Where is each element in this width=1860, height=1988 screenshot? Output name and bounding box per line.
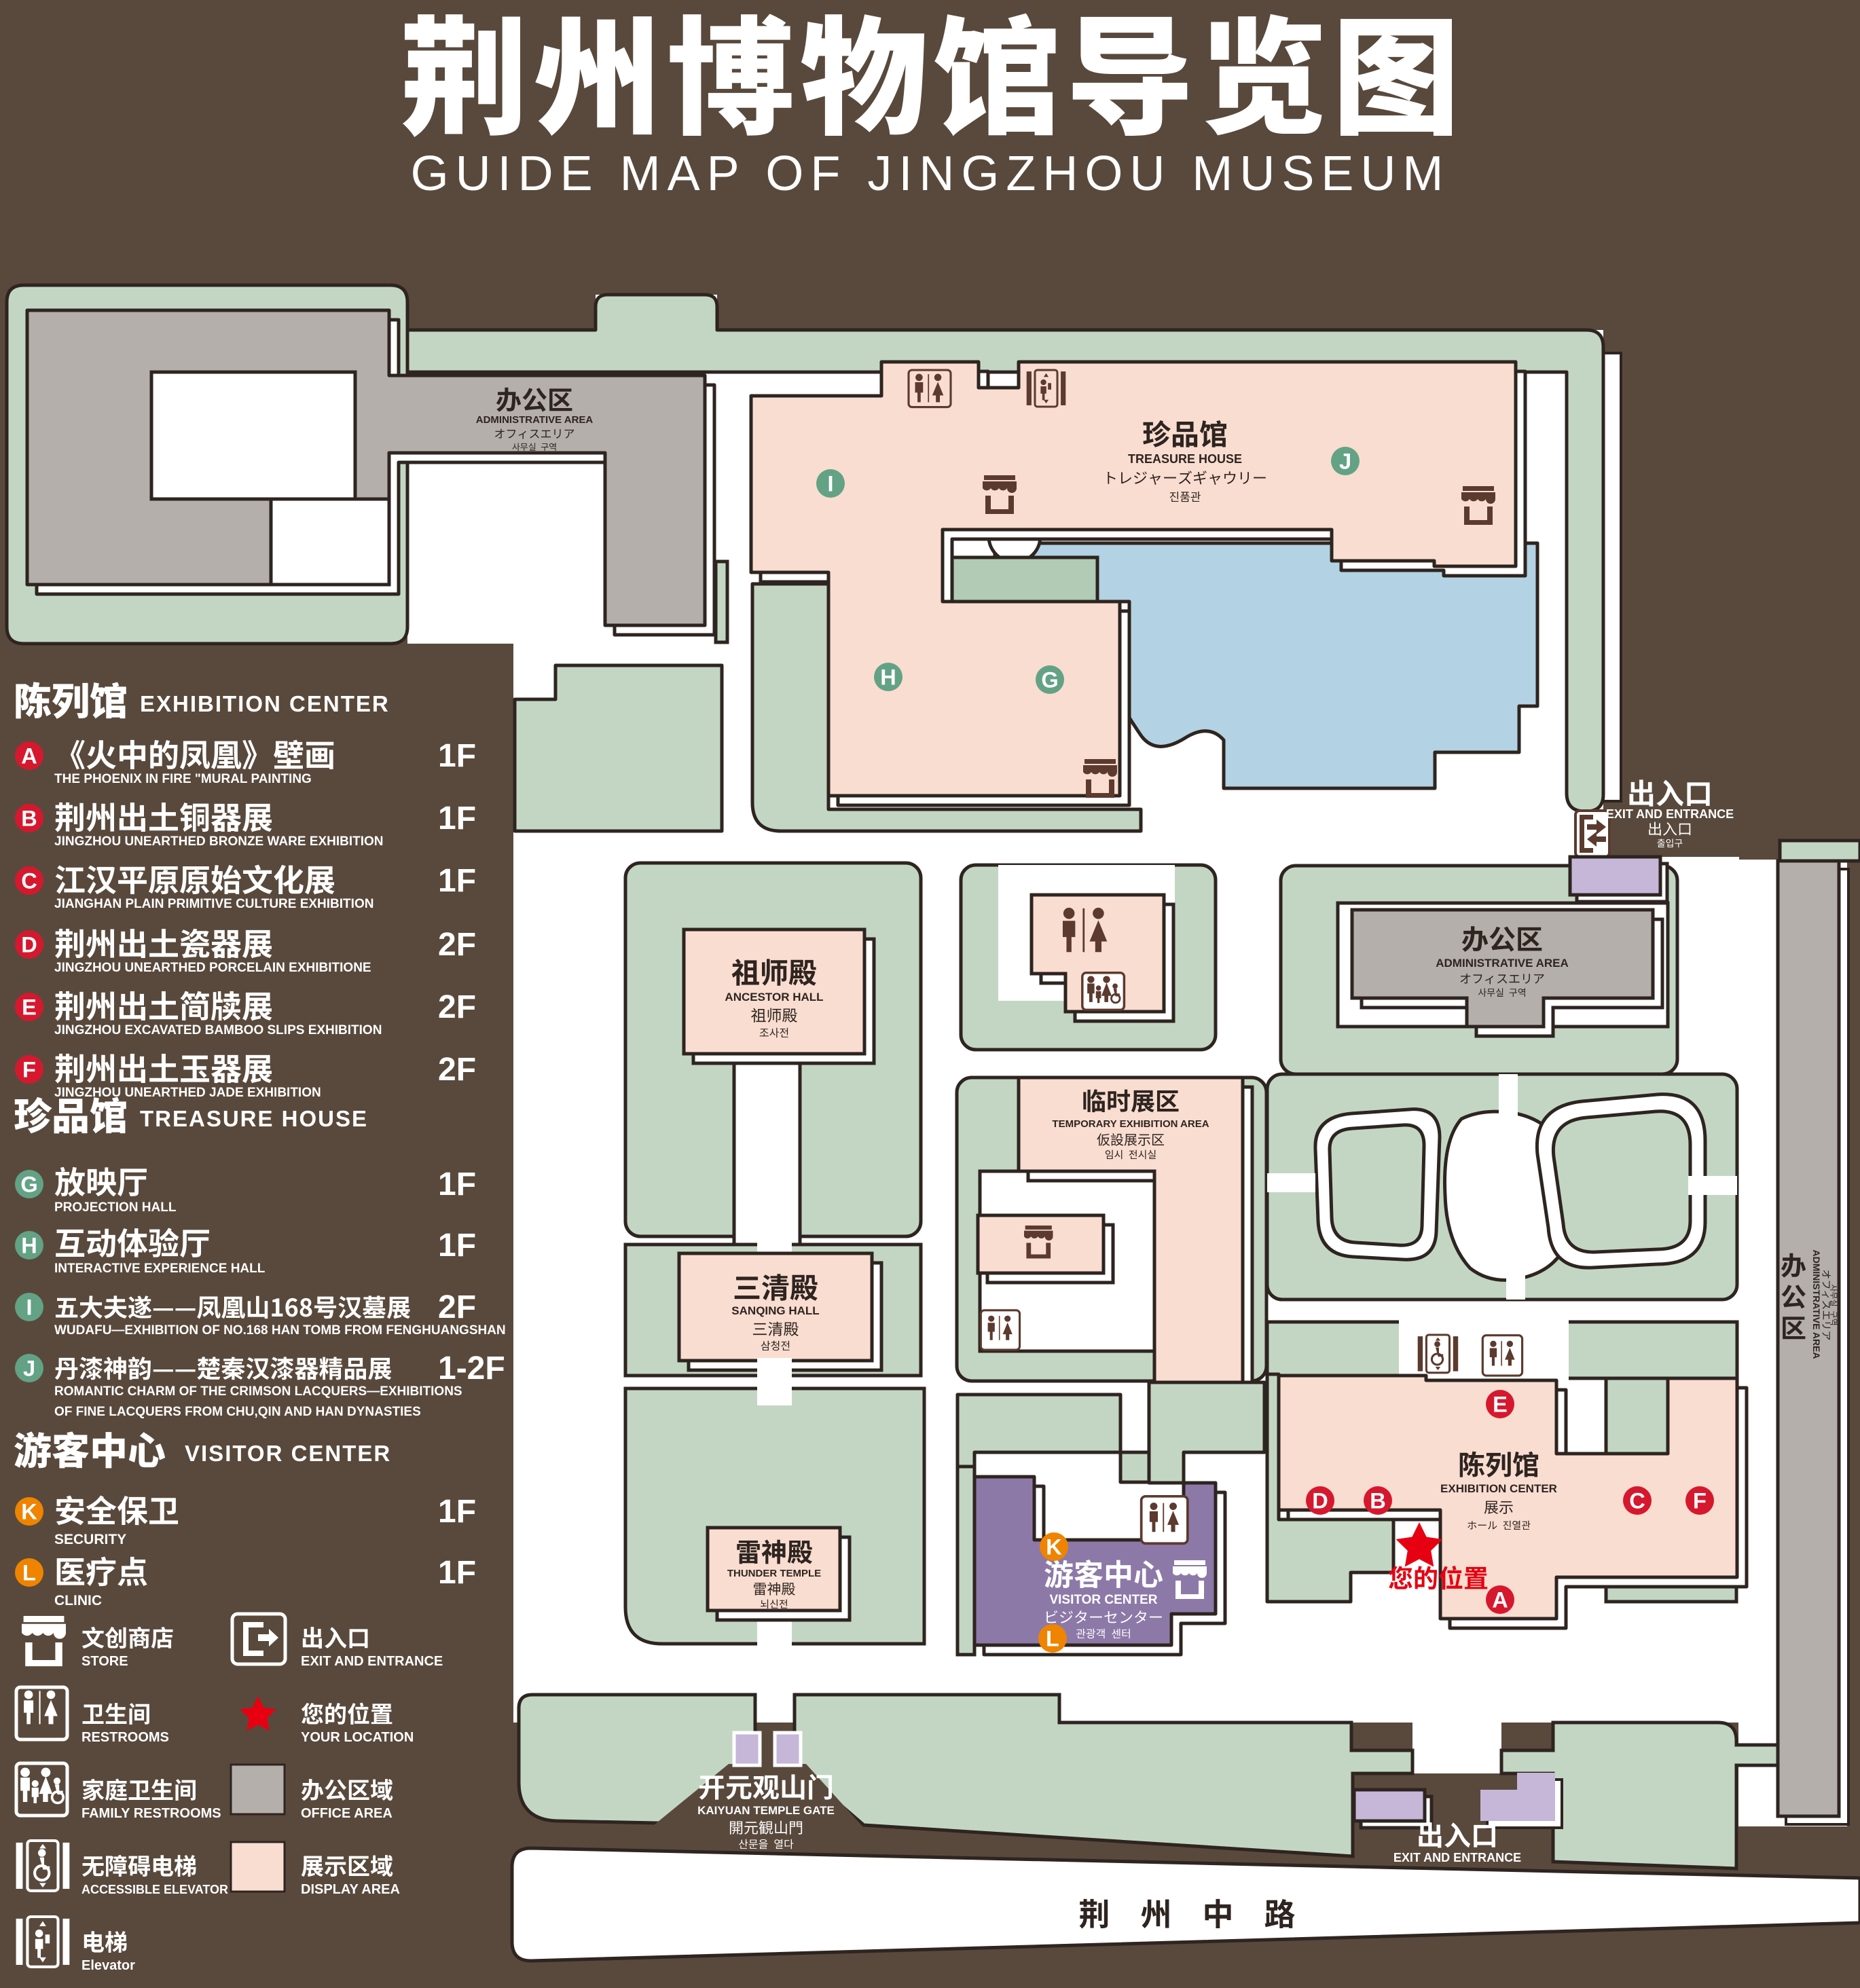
svg-text:D: D [1312, 1489, 1328, 1513]
svg-text:TREASURE HOUSE: TREASURE HOUSE [140, 1106, 368, 1131]
svg-text:EXIT AND ENTRANCE: EXIT AND ENTRANCE [301, 1654, 443, 1669]
svg-text:K: K [21, 1500, 37, 1524]
svg-text:ANCESTOR HALL: ANCESTOR HALL [725, 991, 823, 1004]
svg-text:VISITOR CENTER: VISITOR CENTER [1049, 1593, 1157, 1607]
svg-text:1F: 1F [438, 1166, 476, 1202]
svg-text:ADMINISTRATIVE AREA: ADMINISTRATIVE AREA [1436, 957, 1569, 970]
svg-text:A: A [21, 744, 37, 769]
svg-text:K: K [1046, 1535, 1062, 1560]
svg-text:H: H [880, 665, 896, 690]
svg-text:L: L [1046, 1627, 1059, 1651]
svg-text:2F: 2F [438, 1289, 476, 1325]
svg-text:I: I [827, 472, 833, 496]
svg-text:H: H [21, 1234, 37, 1258]
svg-text:J: J [1339, 449, 1351, 474]
svg-text:EXIT AND ENTRANCE: EXIT AND ENTRANCE [1606, 807, 1734, 821]
svg-text:A: A [1492, 1588, 1508, 1613]
svg-text:GUIDE MAP OF JINGZHOU MUSEUM: GUIDE MAP OF JINGZHOU MUSEUM [411, 147, 1451, 201]
svg-text:CLINIC: CLINIC [54, 1593, 102, 1608]
svg-text:KAIYUAN TEMPLE GATE: KAIYUAN TEMPLE GATE [697, 1804, 835, 1817]
svg-text:JINGZHOU UNEARTHED PORCELAIN E: JINGZHOU UNEARTHED PORCELAIN EXHIBITIONE [54, 961, 371, 975]
svg-text:VISITOR CENTER: VISITOR CENTER [185, 1441, 391, 1466]
svg-text:OF FINE LACQUERS FROM CHU,QIN: OF FINE LACQUERS FROM CHU,QIN AND HAN DY… [54, 1405, 421, 1419]
svg-text:1F: 1F [438, 863, 476, 899]
svg-text:E: E [1493, 1393, 1508, 1417]
svg-text:THUNDER TEMPLE: THUNDER TEMPLE [727, 1568, 821, 1579]
svg-text:ACCESSIBLE ELEVATOR: ACCESSIBLE ELEVATOR [81, 1883, 228, 1896]
svg-text:C: C [1629, 1489, 1645, 1513]
svg-text:D: D [21, 933, 37, 957]
svg-text:INTERACTIVE EXPERIENCE HALL: INTERACTIVE EXPERIENCE HALL [54, 1262, 266, 1276]
svg-text:JINGZHOU EXCAVATED BAMBOO SLIP: JINGZHOU EXCAVATED BAMBOO SLIPS EXHIBITI… [54, 1023, 382, 1037]
svg-text:C: C [21, 869, 37, 894]
svg-text:TREASURE HOUSE: TREASURE HOUSE [1128, 452, 1242, 466]
svg-text:OFFICE AREA: OFFICE AREA [301, 1806, 393, 1821]
svg-text:WUDAFU—EXHIBITION OF NO.168 HA: WUDAFU—EXHIBITION OF NO.168 HAN TOMB FRO… [54, 1323, 506, 1338]
svg-text:L: L [22, 1561, 36, 1585]
svg-text:PROJECTION HALL: PROJECTION HALL [54, 1200, 177, 1215]
svg-text:1F: 1F [438, 1555, 476, 1591]
svg-text:JINGZHOU UNEARTHED BRONZE WARE: JINGZHOU UNEARTHED BRONZE WARE EXHIBITIO… [54, 834, 384, 849]
svg-text:DISPLAY AREA: DISPLAY AREA [301, 1882, 400, 1897]
svg-text:B: B [1370, 1489, 1386, 1513]
svg-text:2F: 2F [438, 927, 476, 963]
svg-text:F: F [22, 1058, 36, 1082]
svg-text:THE PHOENIX IN FIRE "MURAL PAI: THE PHOENIX IN FIRE "MURAL PAINTING [54, 772, 312, 786]
svg-text:TEMPORARY EXHIBITION AREA: TEMPORARY EXHIBITION AREA [1052, 1118, 1209, 1130]
svg-text:Elevator: Elevator [81, 1958, 135, 1973]
svg-text:E: E [22, 995, 37, 1020]
svg-text:1F: 1F [438, 738, 476, 774]
svg-text:SANQING HALL: SANQING HALL [731, 1304, 819, 1317]
svg-text:EXHIBITION CENTER: EXHIBITION CENTER [1440, 1482, 1557, 1495]
svg-text:EXIT AND ENTRANCE: EXIT AND ENTRANCE [1393, 1851, 1521, 1864]
svg-text:F: F [1693, 1489, 1707, 1513]
svg-text:SECURITY: SECURITY [54, 1532, 126, 1547]
svg-text:ADMINISTRATIVE AREA: ADMINISTRATIVE AREA [1811, 1250, 1822, 1359]
svg-text:STORE: STORE [81, 1654, 128, 1669]
svg-text:G: G [20, 1173, 37, 1197]
svg-text:1F: 1F [438, 1228, 476, 1264]
svg-text:I: I [26, 1295, 32, 1320]
svg-text:2F: 2F [438, 1052, 476, 1088]
svg-text:RESTROOMS: RESTROOMS [81, 1730, 169, 1745]
svg-text:J: J [23, 1357, 35, 1381]
svg-text:ROMANTIC CHARM OF THE CRIMSON: ROMANTIC CHARM OF THE CRIMSON LACQUERS—E… [54, 1384, 462, 1399]
svg-text:EXHIBITION CENTER: EXHIBITION CENTER [140, 691, 390, 716]
svg-text:ADMINISTRATIVE AREA: ADMINISTRATIVE AREA [476, 414, 594, 426]
svg-text:1-2F: 1-2F [438, 1350, 505, 1386]
svg-text:1F: 1F [438, 800, 476, 836]
svg-text:JIANGHAN PLAIN PRIMITIVE CULTU: JIANGHAN PLAIN PRIMITIVE CULTURE EXHIBIT… [54, 897, 373, 911]
svg-text:B: B [21, 807, 37, 831]
svg-text:2F: 2F [438, 989, 476, 1025]
svg-text:G: G [1041, 668, 1058, 693]
svg-text:1F: 1F [438, 1494, 476, 1530]
svg-text:FAMILY RESTROOMS: FAMILY RESTROOMS [81, 1806, 221, 1821]
svg-text:YOUR LOCATION: YOUR LOCATION [301, 1730, 414, 1745]
